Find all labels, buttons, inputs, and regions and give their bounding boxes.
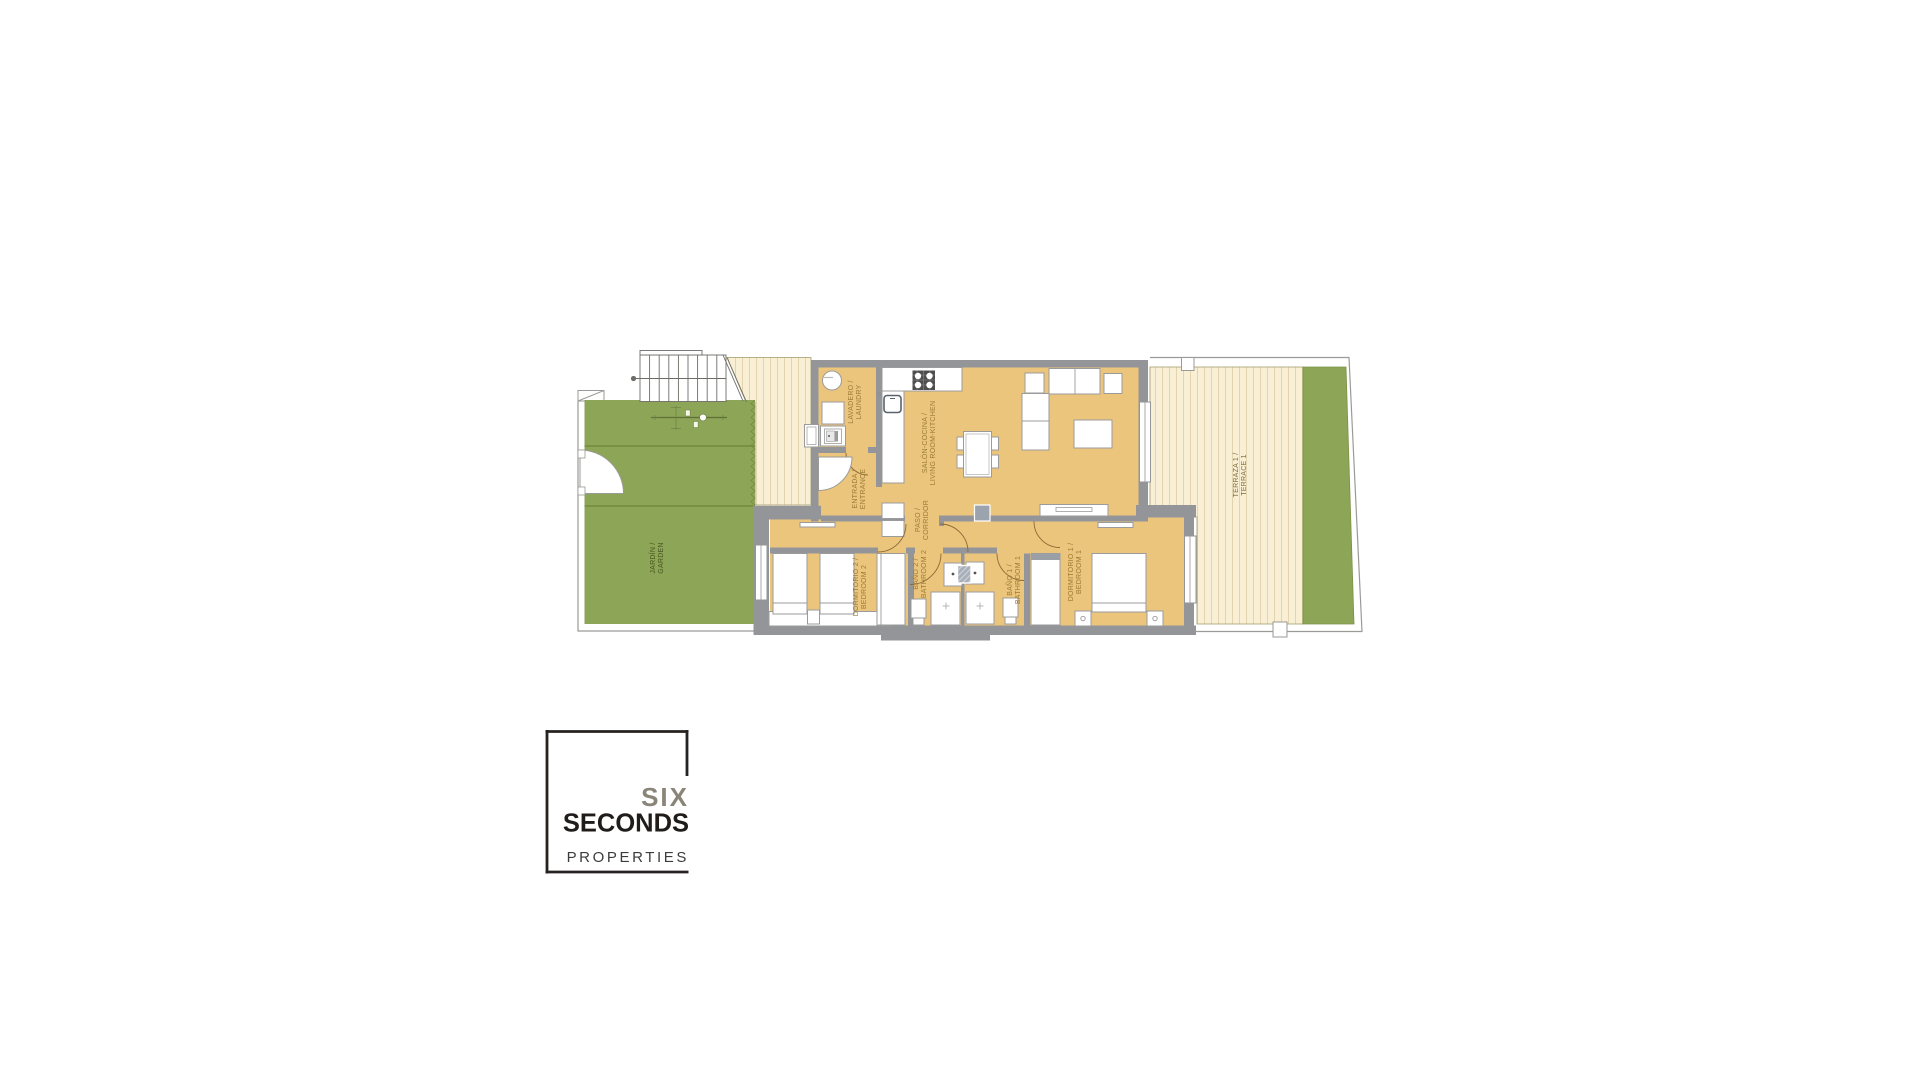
svg-text:PASO /: PASO / <box>915 508 922 532</box>
svg-text:DORMITORIO 2 /: DORMITORIO 2 / <box>853 558 860 617</box>
svg-text:SECONDS: SECONDS <box>563 810 689 838</box>
svg-text:TERRAZA 1 /: TERRAZA 1 / <box>1233 453 1240 498</box>
svg-text:BEDROOM 2: BEDROOM 2 <box>861 565 868 609</box>
svg-text:DORMITORIO 1 /: DORMITORIO 1 / <box>1068 543 1075 602</box>
svg-text:SIX: SIX <box>641 782 689 812</box>
svg-text:TERRACE 1: TERRACE 1 <box>1241 454 1248 496</box>
svg-text:LAUNDRY: LAUNDRY <box>856 384 863 419</box>
svg-text:CORRIDOR: CORRIDOR <box>923 500 930 540</box>
svg-text:LIVING ROOM-KITCHEN: LIVING ROOM-KITCHEN <box>930 401 937 485</box>
svg-text:GARDEN: GARDEN <box>658 542 665 573</box>
svg-text:ENTRADA /: ENTRADA / <box>852 469 859 508</box>
svg-text:BEDROOM 1: BEDROOM 1 <box>1076 550 1083 594</box>
svg-text:LAVADERO /: LAVADERO / <box>848 380 855 423</box>
svg-text:ENTRANCE: ENTRANCE <box>860 469 867 510</box>
svg-text:BATHROOM 2: BATHROOM 2 <box>921 550 928 598</box>
svg-text:BATHROOM 1: BATHROOM 1 <box>1015 556 1022 604</box>
svg-text:PROPERTIES: PROPERTIES <box>567 849 689 866</box>
